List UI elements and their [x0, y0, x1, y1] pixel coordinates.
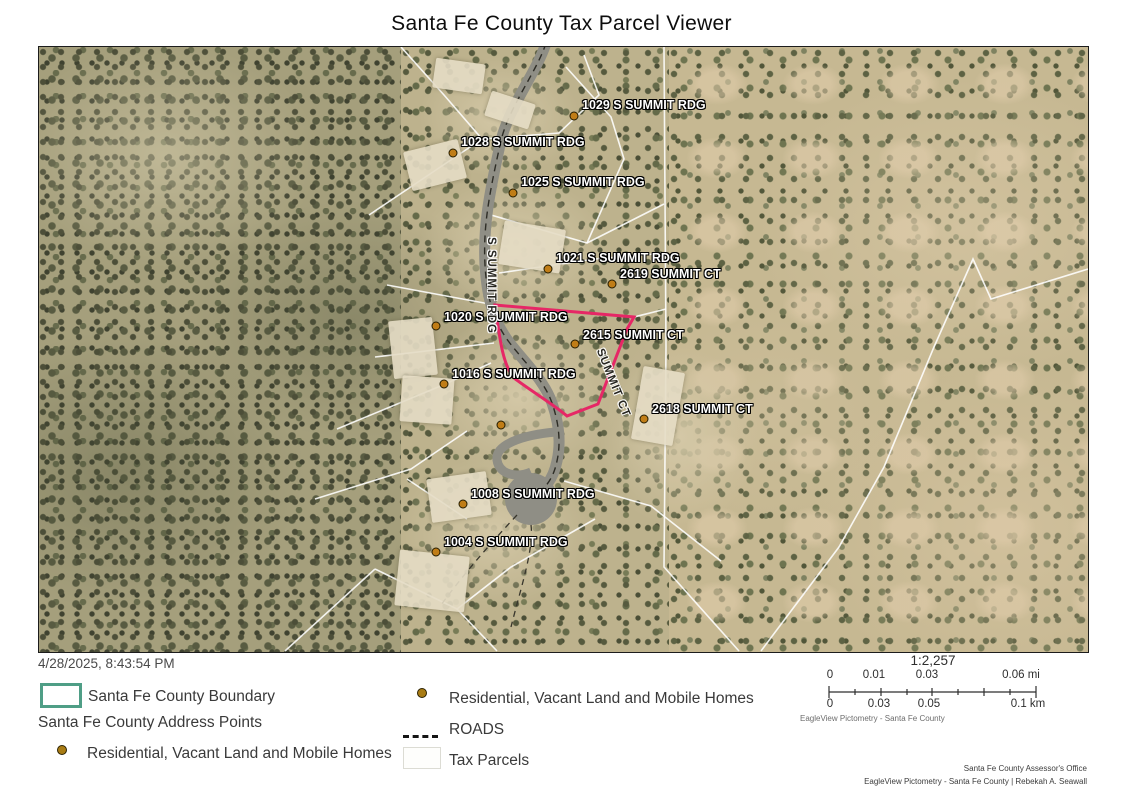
address-label: 1029 S SUMMIT RDG — [582, 98, 706, 112]
address-label: 1025 S SUMMIT RDG — [521, 175, 645, 189]
page: Santa Fe County Tax Parcel Viewer — [0, 0, 1123, 794]
roads-dash-swatch — [403, 735, 438, 738]
scale-km-tick: 0 — [827, 698, 833, 710]
map-annotations: 1029 S SUMMIT RDG1028 S SUMMIT RDG1025 S… — [39, 47, 1088, 652]
address-point-swatch — [417, 688, 427, 698]
scalebar-attribution: EagleView Pictometry - Santa Fe County — [800, 714, 1060, 723]
address-label: 2618 SUMMIT CT — [652, 402, 753, 416]
legend-residential-label-mid: Residential, Vacant Land and Mobile Home… — [449, 690, 754, 708]
county-boundary-swatch — [40, 683, 82, 708]
address-point-dot — [432, 548, 441, 557]
address-point-dot — [509, 189, 518, 198]
road-name-label: S SUMMIT RDG — [485, 237, 497, 334]
scale-mi-tick: 0.01 — [863, 669, 885, 681]
credit-line-1: Santa Fe County Assessor's Office — [864, 762, 1087, 775]
address-point-dot — [459, 500, 468, 509]
address-label: 1028 S SUMMIT RDG — [461, 135, 585, 149]
address-label: 1016 S SUMMIT RDG — [452, 367, 576, 381]
map-viewport[interactable]: 1029 S SUMMIT RDG1028 S SUMMIT RDG1025 S… — [38, 46, 1089, 653]
legend-tax-parcels-label: Tax Parcels — [449, 752, 529, 770]
address-label: 2619 SUMMIT CT — [620, 267, 721, 281]
scale-mi-tick: 0.06 mi — [1002, 669, 1040, 681]
address-point-dot — [544, 265, 553, 274]
legend-roads-label: ROADS — [449, 721, 504, 739]
address-point-swatch — [57, 745, 67, 755]
legend-address-points-header: Santa Fe County Address Points — [38, 714, 262, 732]
legend-residential-label-left: Residential, Vacant Land and Mobile Home… — [87, 745, 392, 763]
address-point-dot — [608, 280, 617, 289]
scalebar-ticks — [828, 685, 1038, 699]
address-label: 1021 S SUMMIT RDG — [556, 251, 680, 265]
address-label: 1008 S SUMMIT RDG — [471, 487, 595, 501]
map-timestamp: 4/28/2025, 8:43:54 PM — [38, 656, 175, 671]
scale-km-tick: 0.1 km — [1011, 698, 1046, 710]
address-point-dot — [640, 415, 649, 424]
address-label: 1020 S SUMMIT RDG — [444, 310, 568, 324]
scale-ratio: 1:2,257 — [828, 653, 1038, 668]
scale-mi-tick: 0 — [827, 669, 833, 681]
address-label: 2615 SUMMIT CT — [583, 328, 684, 342]
tax-parcels-swatch — [403, 747, 441, 769]
address-label: 1004 S SUMMIT RDG — [444, 535, 568, 549]
road-name-label: SUMMIT CT — [594, 347, 632, 419]
address-point-dot — [570, 112, 579, 121]
map-credits: Santa Fe County Assessor's Office EagleV… — [864, 762, 1087, 788]
address-point-dot — [571, 340, 580, 349]
address-point-dot — [497, 421, 506, 430]
address-point-dot — [440, 380, 449, 389]
credit-line-2: EagleView Pictometry - Santa Fe County |… — [864, 775, 1087, 788]
scale-km-tick: 0.05 — [918, 698, 940, 710]
page-title: Santa Fe County Tax Parcel Viewer — [0, 12, 1123, 36]
address-point-dot — [449, 149, 458, 158]
scale-km-tick: 0.03 — [868, 698, 890, 710]
legend-county-boundary-label: Santa Fe County Boundary — [88, 688, 275, 706]
address-point-dot — [432, 322, 441, 331]
scale-mi-tick: 0.03 — [916, 669, 938, 681]
scalebar: 1:2,257 0 0.01 0.03 0.06 mi 0 0.03 0.05 … — [828, 653, 1038, 733]
